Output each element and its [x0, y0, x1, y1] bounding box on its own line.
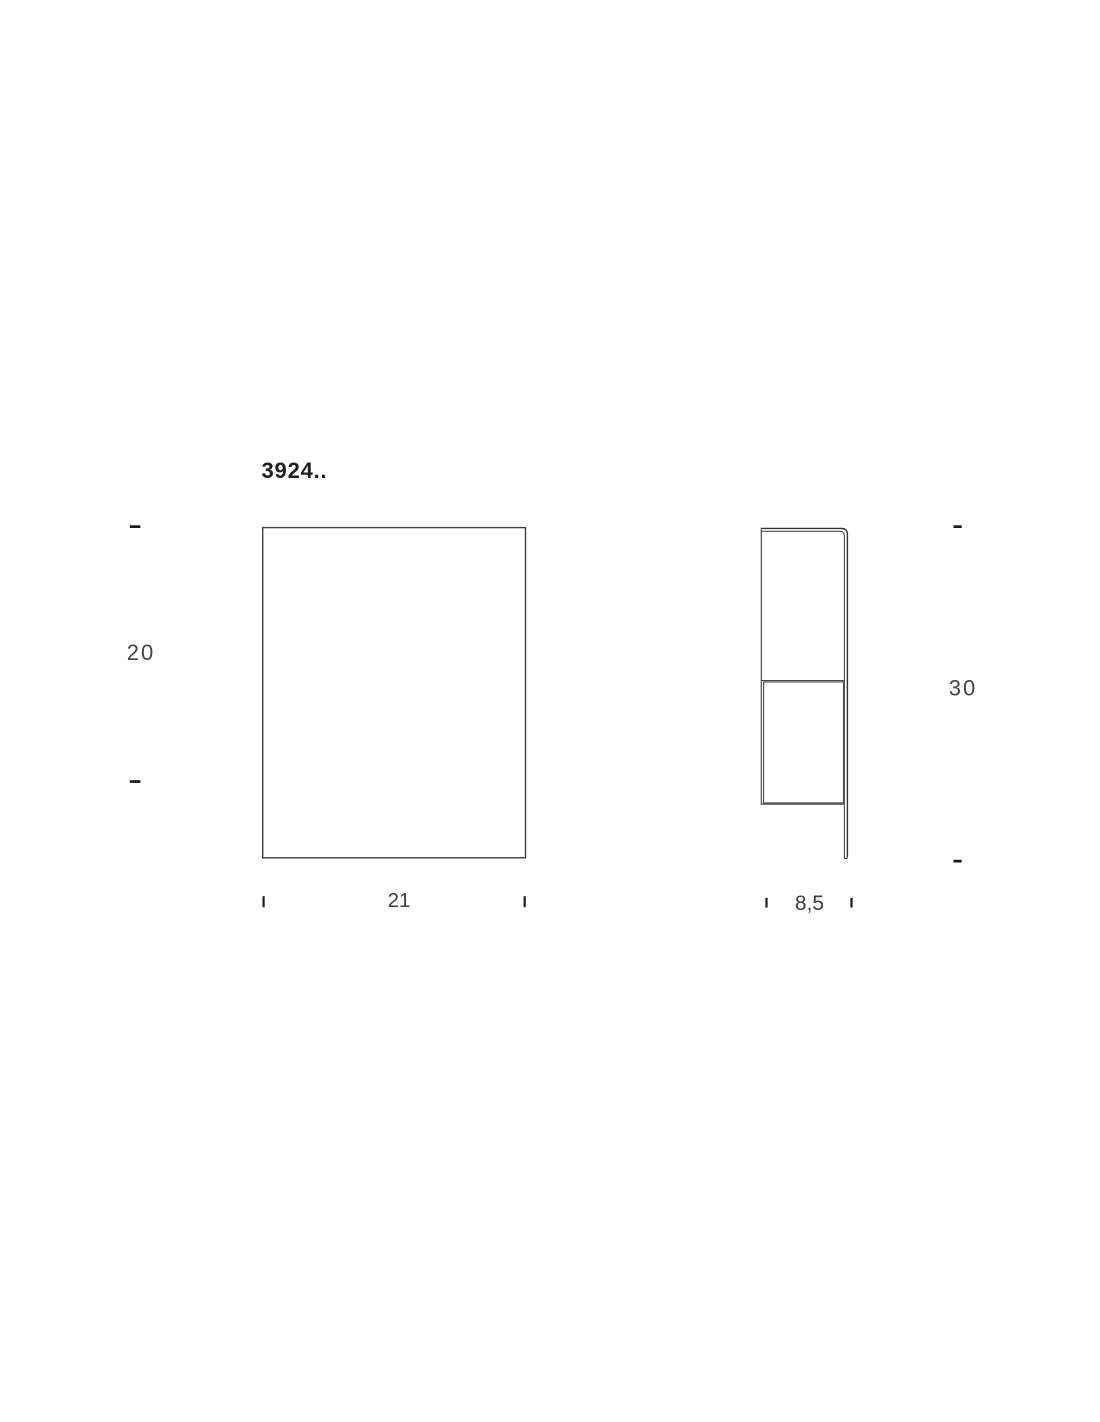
svg-text:21: 21	[388, 889, 411, 912]
svg-text:30: 30	[949, 676, 977, 701]
svg-text:8,5: 8,5	[795, 892, 824, 915]
svg-text:20: 20	[127, 640, 155, 665]
svg-text:3924..: 3924..	[262, 458, 328, 483]
